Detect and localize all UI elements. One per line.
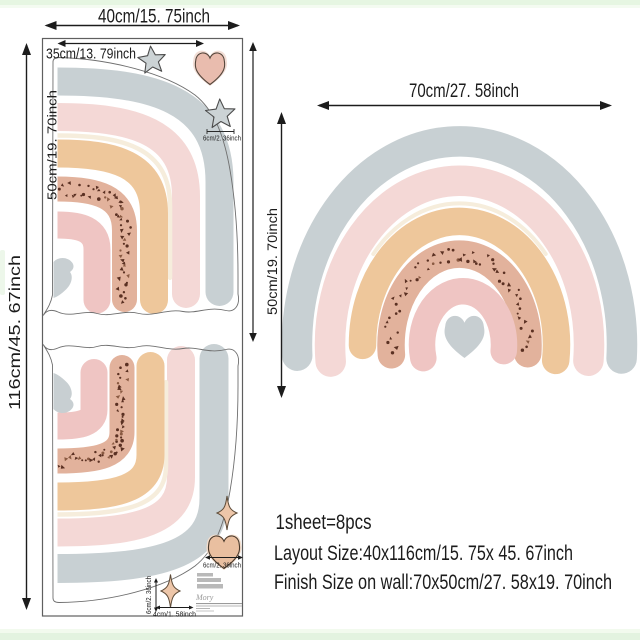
svg-text:Mory: Mory [195, 593, 214, 602]
svg-text:6cm/2. 36inch: 6cm/2. 36inch [203, 134, 241, 143]
svg-text:6cm/2. 36inch: 6cm/2. 36inch [144, 576, 153, 614]
svg-text:50cm/19. 70inch: 50cm/19. 70inch [46, 90, 60, 200]
svg-text:35cm/13. 79inch: 35cm/13. 79inch [46, 47, 136, 63]
svg-text:Layout Size:40x116cm/15. 75x: Layout Size:40x116cm/15. 75x 45. 67inch [274, 542, 573, 565]
svg-text:70cm/27. 58inch: 70cm/27. 58inch [409, 81, 519, 102]
svg-text:Finish Size on wall:70x50cm/27: Finish Size on wall:70x50cm/27. 58x19. 7… [274, 571, 612, 594]
svg-text:6cm/2. 36inch: 6cm/2. 36inch [203, 561, 241, 570]
svg-text:40cm/15. 75inch: 40cm/15. 75inch [98, 7, 210, 28]
svg-text:4cm/1. 58inch: 4cm/1. 58inch [153, 610, 196, 619]
svg-text:50cm/19. 70inch: 50cm/19. 70inch [264, 208, 280, 315]
svg-text:1sheet=8pcs: 1sheet=8pcs [276, 511, 372, 534]
svg-text:116cm/45. 67inch: 116cm/45. 67inch [7, 255, 24, 410]
